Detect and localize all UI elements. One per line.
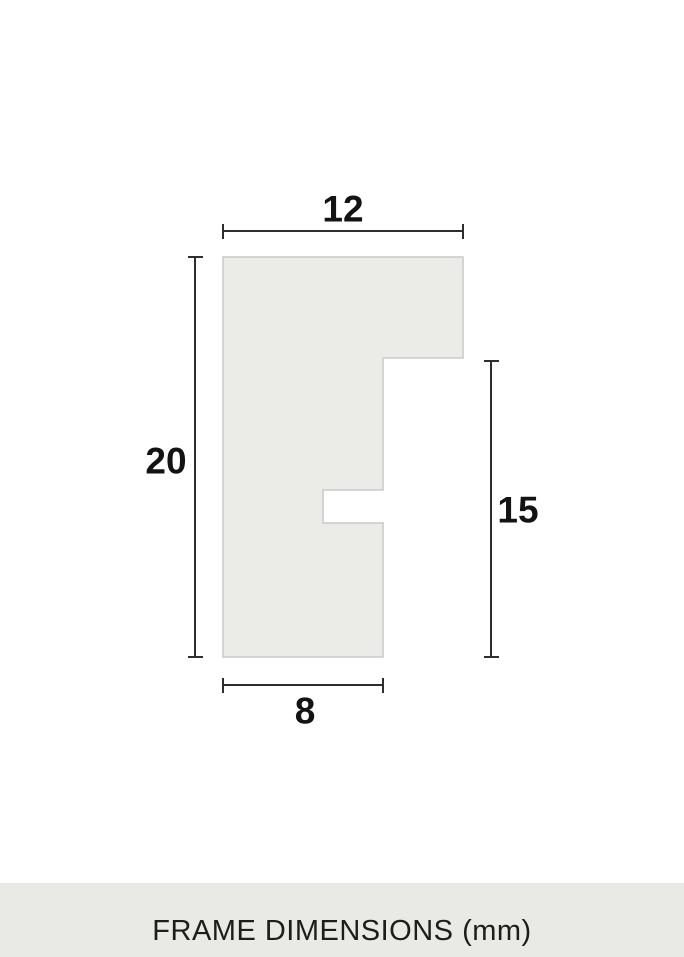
footer-bar: FRAME DIMENSIONS (mm): [0, 883, 684, 957]
dimension-diagram: [0, 0, 684, 957]
dimension-label-right-height: 15: [497, 492, 538, 529]
frame-dimensions-diagram: 12 20 15 8 FRAME DIMENSIONS (mm): [0, 0, 684, 957]
footer-label: FRAME DIMENSIONS (mm): [152, 915, 531, 948]
frame-profile-shape: [223, 257, 463, 657]
dimension-label-left-height: 20: [145, 443, 186, 480]
dimension-line-left-height: [188, 257, 203, 657]
dimension-label-top-width: 12: [322, 191, 363, 228]
dimension-label-bottom-width: 8: [295, 693, 316, 730]
